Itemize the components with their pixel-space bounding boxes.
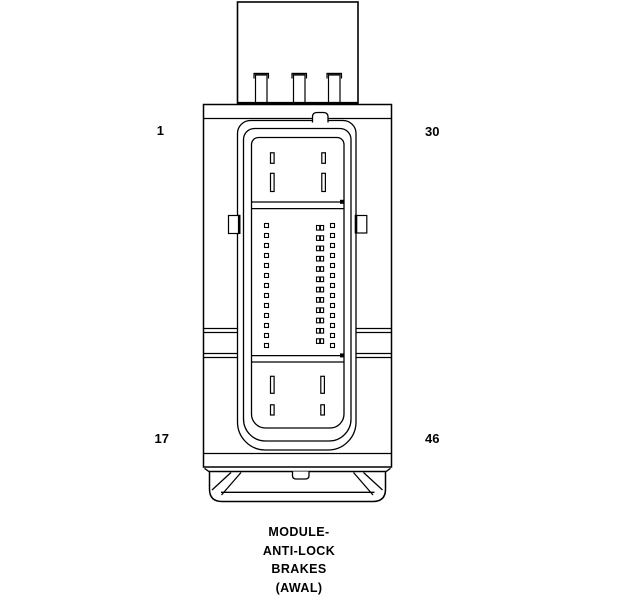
pin-label-30: 30: [425, 125, 445, 139]
boot-release-tab: [293, 472, 310, 480]
alignment-notch: [313, 113, 329, 123]
caption-line: BRAKES: [219, 560, 379, 579]
caption: MODULE- ANTI-LOCK BRAKES (AWAL): [219, 523, 379, 597]
pin-label-17: 17: [148, 432, 169, 446]
wire-boot: [205, 468, 391, 501]
connector-body: [204, 105, 392, 468]
pin-label-46: 46: [425, 432, 445, 446]
right-lock-tab: [356, 215, 367, 234]
caption-line: (AWAL): [219, 579, 379, 598]
pin-label-1: 1: [148, 124, 164, 138]
connector-line-art: [0, 0, 624, 600]
connector-prongs: [254, 74, 343, 103]
connector-diagram: 1 30 17 46 MODULE- ANTI-LOCK BRAKES (AWA…: [0, 0, 624, 600]
left-lock-tab: [229, 215, 240, 234]
top-connector-shell: [237, 2, 359, 104]
caption-line: MODULE-: [219, 523, 379, 542]
caption-line: ANTI-LOCK: [219, 542, 379, 561]
